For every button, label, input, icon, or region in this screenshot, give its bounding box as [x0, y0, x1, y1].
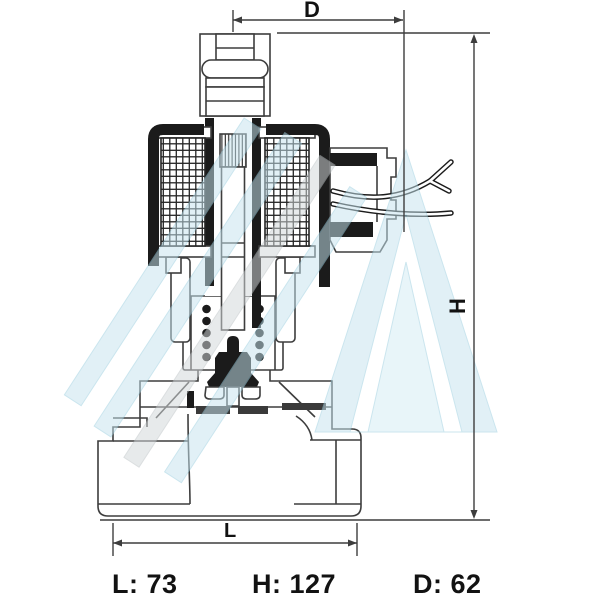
drawing-canvas [0, 0, 600, 600]
dimension-h-label: H [447, 298, 469, 314]
dimension-l-label: L [224, 521, 236, 541]
spec-height: H: 127 [252, 571, 336, 598]
spec-length: L: 73 [112, 571, 178, 598]
spec-depth: D: 62 [413, 571, 482, 598]
top-cap [200, 34, 270, 116]
dimension-d-label: D [304, 0, 320, 21]
solenoid-valve-technical-drawing: D H L L: 73 H: 127 D: 62 [0, 0, 600, 600]
